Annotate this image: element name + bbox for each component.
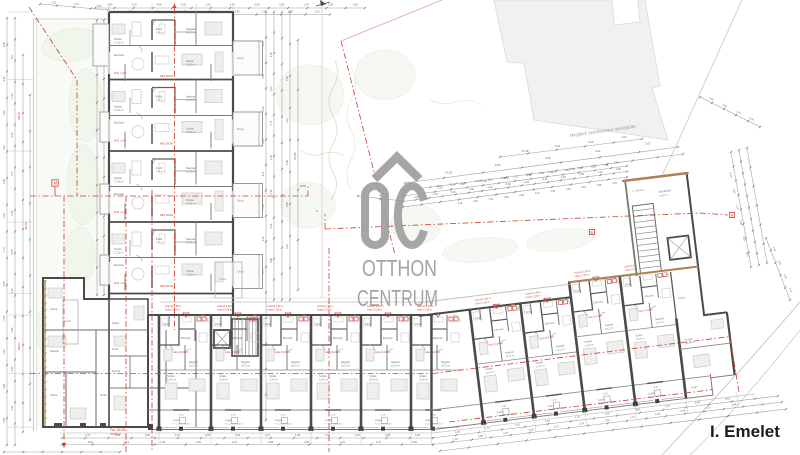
svg-text:18,12 m²: 18,12 m² bbox=[241, 365, 250, 368]
svg-text:2,55: 2,55 bbox=[270, 86, 273, 91]
svg-text:MEG 90/240: MEG 90/240 bbox=[160, 76, 174, 78]
svg-text:I. Emelet: I. Emelet bbox=[710, 422, 780, 441]
svg-text:0,63: 0,63 bbox=[286, 202, 289, 207]
svg-text:Szoba: Szoba bbox=[186, 127, 194, 131]
svg-text:Előszoba: Előszoba bbox=[114, 264, 125, 267]
svg-text:M-01 +3,00: M-01 +3,00 bbox=[114, 211, 127, 214]
svg-text:Előszoba: Előszoba bbox=[114, 54, 125, 57]
svg-text:P. vasbetonfödém: P. vasbetonfödém bbox=[225, 423, 243, 426]
svg-text:Lakó 44,04 m²: Lakó 44,04 m² bbox=[325, 351, 340, 354]
svg-text:0,63: 0,63 bbox=[88, 440, 94, 444]
svg-text:Előszoba: Előszoba bbox=[114, 122, 125, 125]
svg-text:Előszoba: Előszoba bbox=[383, 338, 393, 340]
svg-text:Fürdő: Fürdő bbox=[100, 393, 107, 397]
svg-text:Szoba: Szoba bbox=[419, 374, 427, 378]
svg-text:3,12: 3,12 bbox=[591, 167, 596, 169]
svg-text:1,10: 1,10 bbox=[3, 349, 6, 354]
svg-text:1,75: 1,75 bbox=[85, 433, 91, 437]
svg-text:Lakó 44,04 m²: Lakó 44,04 m² bbox=[425, 351, 440, 354]
svg-text:Előszoba: Előszoba bbox=[433, 338, 443, 340]
svg-text:1,50: 1,50 bbox=[107, 3, 113, 7]
svg-text:Fürdő: Fürdő bbox=[156, 238, 163, 241]
svg-text:17,25 m²: 17,25 m² bbox=[114, 252, 124, 255]
svg-text:Szoba: Szoba bbox=[319, 374, 327, 378]
svg-text:24,10 m²: 24,10 m² bbox=[186, 32, 196, 35]
svg-text:12,65 m²: 12,65 m² bbox=[269, 379, 278, 382]
svg-text:4,07: 4,07 bbox=[11, 54, 14, 59]
svg-text:0,98: 0,98 bbox=[436, 186, 441, 188]
svg-text:18,12 m²: 18,12 m² bbox=[189, 365, 198, 368]
svg-text:2,10: 2,10 bbox=[132, 3, 138, 7]
svg-text:Fürdő: Fürdő bbox=[156, 167, 163, 170]
svg-text:Fürdő: Fürdő bbox=[365, 323, 372, 326]
svg-text:1,10: 1,10 bbox=[488, 186, 493, 189]
svg-text:0,98: 0,98 bbox=[616, 168, 621, 171]
svg-text:1,10: 1,10 bbox=[489, 199, 494, 201]
svg-text:3,25: 3,25 bbox=[262, 106, 265, 111]
svg-text:3,12: 3,12 bbox=[265, 433, 271, 437]
svg-text:Lakó 44,04 m²: Lakó 44,04 m² bbox=[375, 351, 390, 354]
svg-text:1,38: 1,38 bbox=[604, 165, 609, 167]
svg-text:Szoba: Szoba bbox=[219, 374, 227, 378]
svg-text:M-01 +3,00: M-01 +3,00 bbox=[114, 72, 127, 75]
svg-text:2,86: 2,86 bbox=[565, 170, 570, 172]
svg-text:12,65 m²: 12,65 m² bbox=[167, 379, 176, 382]
svg-text:Terasz: Terasz bbox=[64, 320, 72, 323]
svg-text:P. vasbetonfödém: P. vasbetonfödém bbox=[173, 423, 191, 426]
svg-text:1,20: 1,20 bbox=[206, 3, 212, 7]
svg-text:Lépcs 2,28 m: Lépcs 2,28 m bbox=[217, 309, 232, 312]
svg-text:1,20: 1,20 bbox=[3, 110, 6, 115]
svg-text:CENTRUM: CENTRUM bbox=[357, 285, 438, 311]
svg-text:1,50: 1,50 bbox=[579, 173, 584, 176]
svg-text:0,30: 0,30 bbox=[412, 440, 418, 444]
svg-text:2,07: 2,07 bbox=[645, 142, 651, 146]
svg-text:18,12 m²: 18,12 m² bbox=[291, 365, 300, 368]
svg-text:Tetőkert: Tetőkert bbox=[110, 432, 121, 436]
svg-text:0,63: 0,63 bbox=[520, 195, 525, 197]
svg-text:12,65 m²: 12,65 m² bbox=[369, 379, 378, 382]
svg-text:Erkély: Erkély bbox=[237, 200, 244, 203]
svg-text:3,12: 3,12 bbox=[124, 440, 130, 444]
svg-text:Fürdő: Fürdő bbox=[415, 323, 422, 326]
svg-text:Szoba: Szoba bbox=[114, 105, 122, 109]
svg-text:3,25: 3,25 bbox=[449, 185, 454, 187]
svg-text:1,20: 1,20 bbox=[51, 1, 56, 4]
svg-text:2,55: 2,55 bbox=[501, 178, 506, 180]
svg-text:2,86: 2,86 bbox=[205, 433, 211, 437]
svg-text:0,63: 0,63 bbox=[578, 168, 583, 170]
svg-text:3,25: 3,25 bbox=[3, 76, 6, 81]
svg-text:0,98: 0,98 bbox=[3, 42, 6, 47]
svg-text:Fürdő: Fürdő bbox=[112, 348, 119, 351]
svg-text:Előszoba: Előszoba bbox=[233, 338, 243, 340]
svg-text:Lépcs 2,28 m: Lépcs 2,28 m bbox=[267, 309, 282, 312]
svg-text:4,07: 4,07 bbox=[376, 440, 382, 444]
svg-text:0,90: 0,90 bbox=[145, 433, 151, 437]
svg-text:18,12 m²: 18,12 m² bbox=[341, 365, 350, 368]
svg-text:1,10: 1,10 bbox=[552, 171, 557, 173]
svg-text:MEG 90/240: MEG 90/240 bbox=[160, 144, 174, 146]
svg-text:1,10: 1,10 bbox=[270, 223, 273, 228]
svg-text:1,75: 1,75 bbox=[11, 171, 14, 176]
svg-text:5,40: 5,40 bbox=[3, 281, 6, 286]
svg-text:0,90: 0,90 bbox=[473, 201, 478, 203]
svg-text:1,75: 1,75 bbox=[304, 3, 310, 7]
svg-text:1,38: 1,38 bbox=[160, 440, 166, 444]
svg-text:12,65 m²: 12,65 m² bbox=[219, 379, 228, 382]
svg-text:Fürdő: Fürdő bbox=[156, 28, 163, 31]
svg-text:1,38: 1,38 bbox=[561, 176, 566, 179]
svg-text:Szoba: Szoba bbox=[186, 198, 194, 202]
svg-text:0,90: 0,90 bbox=[315, 11, 320, 14]
svg-text:+2,95: +2,95 bbox=[178, 415, 184, 417]
svg-text:0,90: 0,90 bbox=[539, 173, 544, 175]
svg-text:Fürdő: Fürdő bbox=[156, 96, 163, 99]
svg-text:0,63: 0,63 bbox=[11, 366, 14, 371]
svg-text:Szoba: Szoba bbox=[167, 374, 175, 378]
svg-text:1,20: 1,20 bbox=[462, 183, 467, 185]
svg-text:Konyha: Konyha bbox=[112, 370, 121, 373]
svg-text:2,86: 2,86 bbox=[286, 160, 289, 165]
svg-text:1,10: 1,10 bbox=[175, 433, 181, 437]
svg-text:Szoba: Szoba bbox=[369, 374, 377, 378]
svg-text:Fürdő: Fürdő bbox=[315, 323, 322, 326]
svg-text:9,06: 9,06 bbox=[555, 144, 561, 148]
svg-text:2,55: 2,55 bbox=[279, 3, 285, 7]
svg-text:2,86: 2,86 bbox=[3, 383, 6, 388]
svg-text:0,30: 0,30 bbox=[11, 93, 14, 98]
svg-text:17,25 m²: 17,25 m² bbox=[114, 42, 124, 45]
svg-text:2,10: 2,10 bbox=[355, 433, 361, 437]
svg-text:Szoba: Szoba bbox=[50, 393, 58, 397]
svg-text:6,49: 6,49 bbox=[588, 140, 594, 144]
svg-text:Előszoba: Előszoba bbox=[283, 338, 293, 340]
svg-text:Lakó 44,04 m²: Lakó 44,04 m² bbox=[173, 351, 188, 354]
svg-text:282,50: 282,50 bbox=[17, 112, 21, 120]
svg-text:18,12 m²: 18,12 m² bbox=[441, 365, 450, 368]
svg-text:1,38: 1,38 bbox=[551, 191, 556, 193]
svg-text:+2,95: +2,95 bbox=[380, 415, 386, 417]
svg-text:2,86: 2,86 bbox=[270, 257, 273, 262]
svg-text:Fürdő: Fürdő bbox=[215, 323, 222, 326]
svg-text:Nappali: Nappali bbox=[189, 361, 198, 364]
svg-text:1,75: 1,75 bbox=[3, 247, 6, 252]
svg-text:+2,95: +2,95 bbox=[330, 415, 336, 417]
svg-text:2,86: 2,86 bbox=[614, 162, 619, 165]
svg-text:M: M bbox=[54, 181, 58, 186]
svg-text:2,55: 2,55 bbox=[235, 11, 240, 14]
svg-text:4,07: 4,07 bbox=[74, 3, 79, 6]
svg-text:Erkély: Erkély bbox=[237, 128, 244, 131]
svg-text:Nappali: Nappali bbox=[186, 166, 196, 170]
svg-text:14,05 m²: 14,05 m² bbox=[186, 131, 196, 134]
svg-text:0,98: 0,98 bbox=[268, 440, 274, 444]
svg-text:0,90: 0,90 bbox=[11, 249, 14, 254]
svg-text:Nappali: Nappali bbox=[186, 27, 196, 31]
svg-text:5,40: 5,40 bbox=[270, 155, 273, 160]
svg-text:0,90: 0,90 bbox=[286, 76, 289, 81]
svg-text:+2,95: +2,95 bbox=[280, 415, 286, 417]
svg-text:0,30: 0,30 bbox=[270, 52, 273, 57]
svg-text:0,98: 0,98 bbox=[385, 433, 391, 437]
svg-text:9,06: 9,06 bbox=[495, 163, 501, 167]
svg-text:M-01 +3,00: M-01 +3,00 bbox=[114, 282, 127, 285]
svg-text:0,98: 0,98 bbox=[597, 185, 602, 187]
svg-text:14,18: 14,18 bbox=[445, 170, 452, 174]
svg-text:0,90: 0,90 bbox=[270, 189, 273, 194]
svg-text:P. vasbetonfödém: P. vasbetonfödém bbox=[375, 423, 393, 426]
svg-text:1,50: 1,50 bbox=[566, 189, 571, 191]
svg-text:0,98: 0,98 bbox=[156, 3, 162, 7]
svg-text:0,63: 0,63 bbox=[235, 433, 241, 437]
svg-text:0,30: 0,30 bbox=[3, 178, 6, 183]
svg-text:5,40: 5,40 bbox=[451, 191, 456, 194]
svg-text:4,62: 4,62 bbox=[595, 149, 601, 153]
svg-text:Lépcs 2,28 m: Lépcs 2,28 m bbox=[165, 309, 180, 312]
svg-text:Szoba: Szoba bbox=[269, 374, 277, 378]
svg-text:Erkély: Erkély bbox=[237, 57, 244, 60]
svg-text:4,20 m²: 4,20 m² bbox=[156, 99, 164, 102]
svg-text:Szoba: Szoba bbox=[114, 37, 122, 41]
svg-text:0,30: 0,30 bbox=[482, 180, 487, 183]
svg-text:Lakó 44,04 m²: Lakó 44,04 m² bbox=[275, 351, 290, 354]
svg-text:0,30: 0,30 bbox=[488, 180, 493, 182]
svg-text:Szoba: Szoba bbox=[50, 307, 58, 311]
svg-text:Előszoba: Előszoba bbox=[333, 338, 343, 340]
svg-text:2,86: 2,86 bbox=[11, 327, 14, 332]
svg-text:4,07: 4,07 bbox=[262, 171, 265, 176]
svg-text:24,10 m²: 24,10 m² bbox=[186, 242, 196, 245]
svg-text:0,90: 0,90 bbox=[3, 315, 6, 320]
svg-text:281,95: 281,95 bbox=[24, 222, 28, 230]
svg-text:3,12: 3,12 bbox=[11, 405, 14, 410]
svg-text:3,12: 3,12 bbox=[535, 193, 540, 195]
svg-text:Fürdő: Fürdő bbox=[163, 323, 170, 326]
svg-text:14,05 m²: 14,05 m² bbox=[186, 203, 196, 206]
svg-text:Előszoba: Előszoba bbox=[114, 193, 125, 196]
svg-text:5,66: 5,66 bbox=[545, 156, 551, 160]
svg-text:3,25: 3,25 bbox=[181, 3, 187, 7]
svg-text:0,63: 0,63 bbox=[3, 417, 6, 422]
svg-text:24,10 m²: 24,10 m² bbox=[186, 99, 196, 102]
svg-text:0,90: 0,90 bbox=[353, 3, 359, 7]
svg-text:MEG 90/240: MEG 90/240 bbox=[160, 286, 174, 288]
svg-text:2,10: 2,10 bbox=[598, 171, 603, 174]
svg-text:Nappali: Nappali bbox=[50, 349, 59, 353]
svg-text:2,07: 2,07 bbox=[621, 135, 627, 139]
svg-text:Nappali: Nappali bbox=[341, 361, 350, 364]
svg-text:3,12: 3,12 bbox=[286, 244, 289, 249]
svg-text:Nappali: Nappali bbox=[441, 361, 450, 364]
svg-text:2,55: 2,55 bbox=[262, 236, 265, 241]
svg-text:2,10: 2,10 bbox=[232, 440, 238, 444]
svg-text:MEG 90/240: MEG 90/240 bbox=[160, 215, 174, 217]
svg-text:Erkély: Erkély bbox=[237, 271, 244, 274]
svg-text:14,05 m²: 14,05 m² bbox=[186, 64, 196, 67]
svg-text:3,25: 3,25 bbox=[304, 440, 310, 444]
svg-text:1,50: 1,50 bbox=[325, 433, 331, 437]
svg-text:0,30: 0,30 bbox=[97, 5, 102, 8]
svg-text:Lépcs 2,28 m: Lépcs 2,28 m bbox=[317, 309, 332, 312]
svg-text:Nappali: Nappali bbox=[391, 361, 400, 364]
svg-text:5,40: 5,40 bbox=[458, 203, 463, 205]
svg-text:5,40: 5,40 bbox=[526, 175, 531, 177]
svg-text:12,65 m²: 12,65 m² bbox=[319, 379, 328, 382]
svg-text:P. vasbetonfödém: P. vasbetonfödém bbox=[275, 423, 293, 426]
svg-text:23,85: 23,85 bbox=[293, 152, 297, 160]
svg-text:1,20: 1,20 bbox=[340, 440, 346, 444]
svg-text:282,10: 282,10 bbox=[17, 342, 21, 350]
svg-text:Szoba: Szoba bbox=[114, 176, 122, 180]
svg-text:4,20 m²: 4,20 m² bbox=[156, 241, 164, 244]
svg-text:OTTHON: OTTHON bbox=[362, 255, 437, 281]
svg-text:Nappali: Nappali bbox=[186, 95, 196, 99]
svg-text:2,10: 2,10 bbox=[581, 187, 586, 189]
svg-text:24,18: 24,18 bbox=[522, 149, 529, 153]
svg-text:2,86: 2,86 bbox=[504, 197, 509, 199]
svg-text:2,86: 2,86 bbox=[506, 183, 511, 186]
svg-text:Szoba: Szoba bbox=[112, 322, 119, 325]
svg-text:1,75: 1,75 bbox=[514, 176, 519, 178]
svg-text:1,50: 1,50 bbox=[196, 440, 202, 444]
svg-text:4,07: 4,07 bbox=[3, 144, 6, 149]
svg-text:0,30: 0,30 bbox=[255, 3, 261, 7]
svg-text:24,10 m²: 24,10 m² bbox=[186, 171, 196, 174]
svg-text:Szoba: Szoba bbox=[114, 247, 122, 251]
svg-text:5,40: 5,40 bbox=[328, 3, 334, 7]
svg-text:1,10: 1,10 bbox=[286, 118, 289, 123]
svg-text:3,12: 3,12 bbox=[543, 178, 548, 181]
svg-text:P. vasbetonfödém: P. vasbetonfödém bbox=[425, 423, 443, 426]
svg-text:3,25: 3,25 bbox=[415, 433, 421, 437]
svg-text:Nappali: Nappali bbox=[291, 361, 300, 364]
svg-text:0,63: 0,63 bbox=[524, 181, 529, 184]
svg-text:1,75: 1,75 bbox=[270, 120, 273, 125]
svg-text:Fürdő: Fürdő bbox=[265, 323, 272, 326]
svg-text:0,90: 0,90 bbox=[469, 188, 474, 191]
svg-text:1,75: 1,75 bbox=[433, 193, 438, 196]
svg-text:1,38: 1,38 bbox=[295, 433, 301, 437]
svg-text:Lakó 44,04 m²: Lakó 44,04 m² bbox=[225, 351, 240, 354]
svg-text:18,12 m²: 18,12 m² bbox=[391, 365, 400, 368]
svg-text:12,65 m²: 12,65 m² bbox=[419, 379, 428, 382]
svg-text:2,55: 2,55 bbox=[3, 212, 6, 217]
svg-text:4,07: 4,07 bbox=[475, 181, 480, 183]
svg-text:Nappali: Nappali bbox=[186, 237, 196, 241]
svg-text:Szoba: Szoba bbox=[186, 59, 194, 63]
svg-text:Előszoba: Előszoba bbox=[181, 338, 191, 340]
svg-text:0,90: 0,90 bbox=[570, 168, 575, 171]
svg-text:3,25: 3,25 bbox=[612, 183, 617, 185]
svg-text:4,20 m²: 4,20 m² bbox=[156, 170, 164, 173]
svg-text:4,20 m²: 4,20 m² bbox=[156, 31, 164, 34]
svg-text:+2,95: +2,95 bbox=[230, 415, 236, 417]
svg-text:2,55: 2,55 bbox=[11, 132, 14, 137]
svg-text:Szoba: Szoba bbox=[186, 269, 194, 273]
svg-text:Nappali: Nappali bbox=[241, 361, 250, 364]
svg-text:14,05 m²: 14,05 m² bbox=[186, 274, 196, 277]
svg-text:5,40: 5,40 bbox=[11, 210, 14, 215]
svg-text:Terasz: Terasz bbox=[219, 278, 227, 281]
svg-text:1,10: 1,10 bbox=[11, 288, 14, 293]
svg-text:M-01 +3,00: M-01 +3,00 bbox=[114, 140, 127, 143]
svg-text:17,25 m²: 17,25 m² bbox=[114, 181, 124, 184]
svg-text:17,25 m²: 17,25 m² bbox=[114, 109, 124, 112]
svg-text:P. vasbetonfödém: P. vasbetonfödém bbox=[325, 423, 343, 426]
